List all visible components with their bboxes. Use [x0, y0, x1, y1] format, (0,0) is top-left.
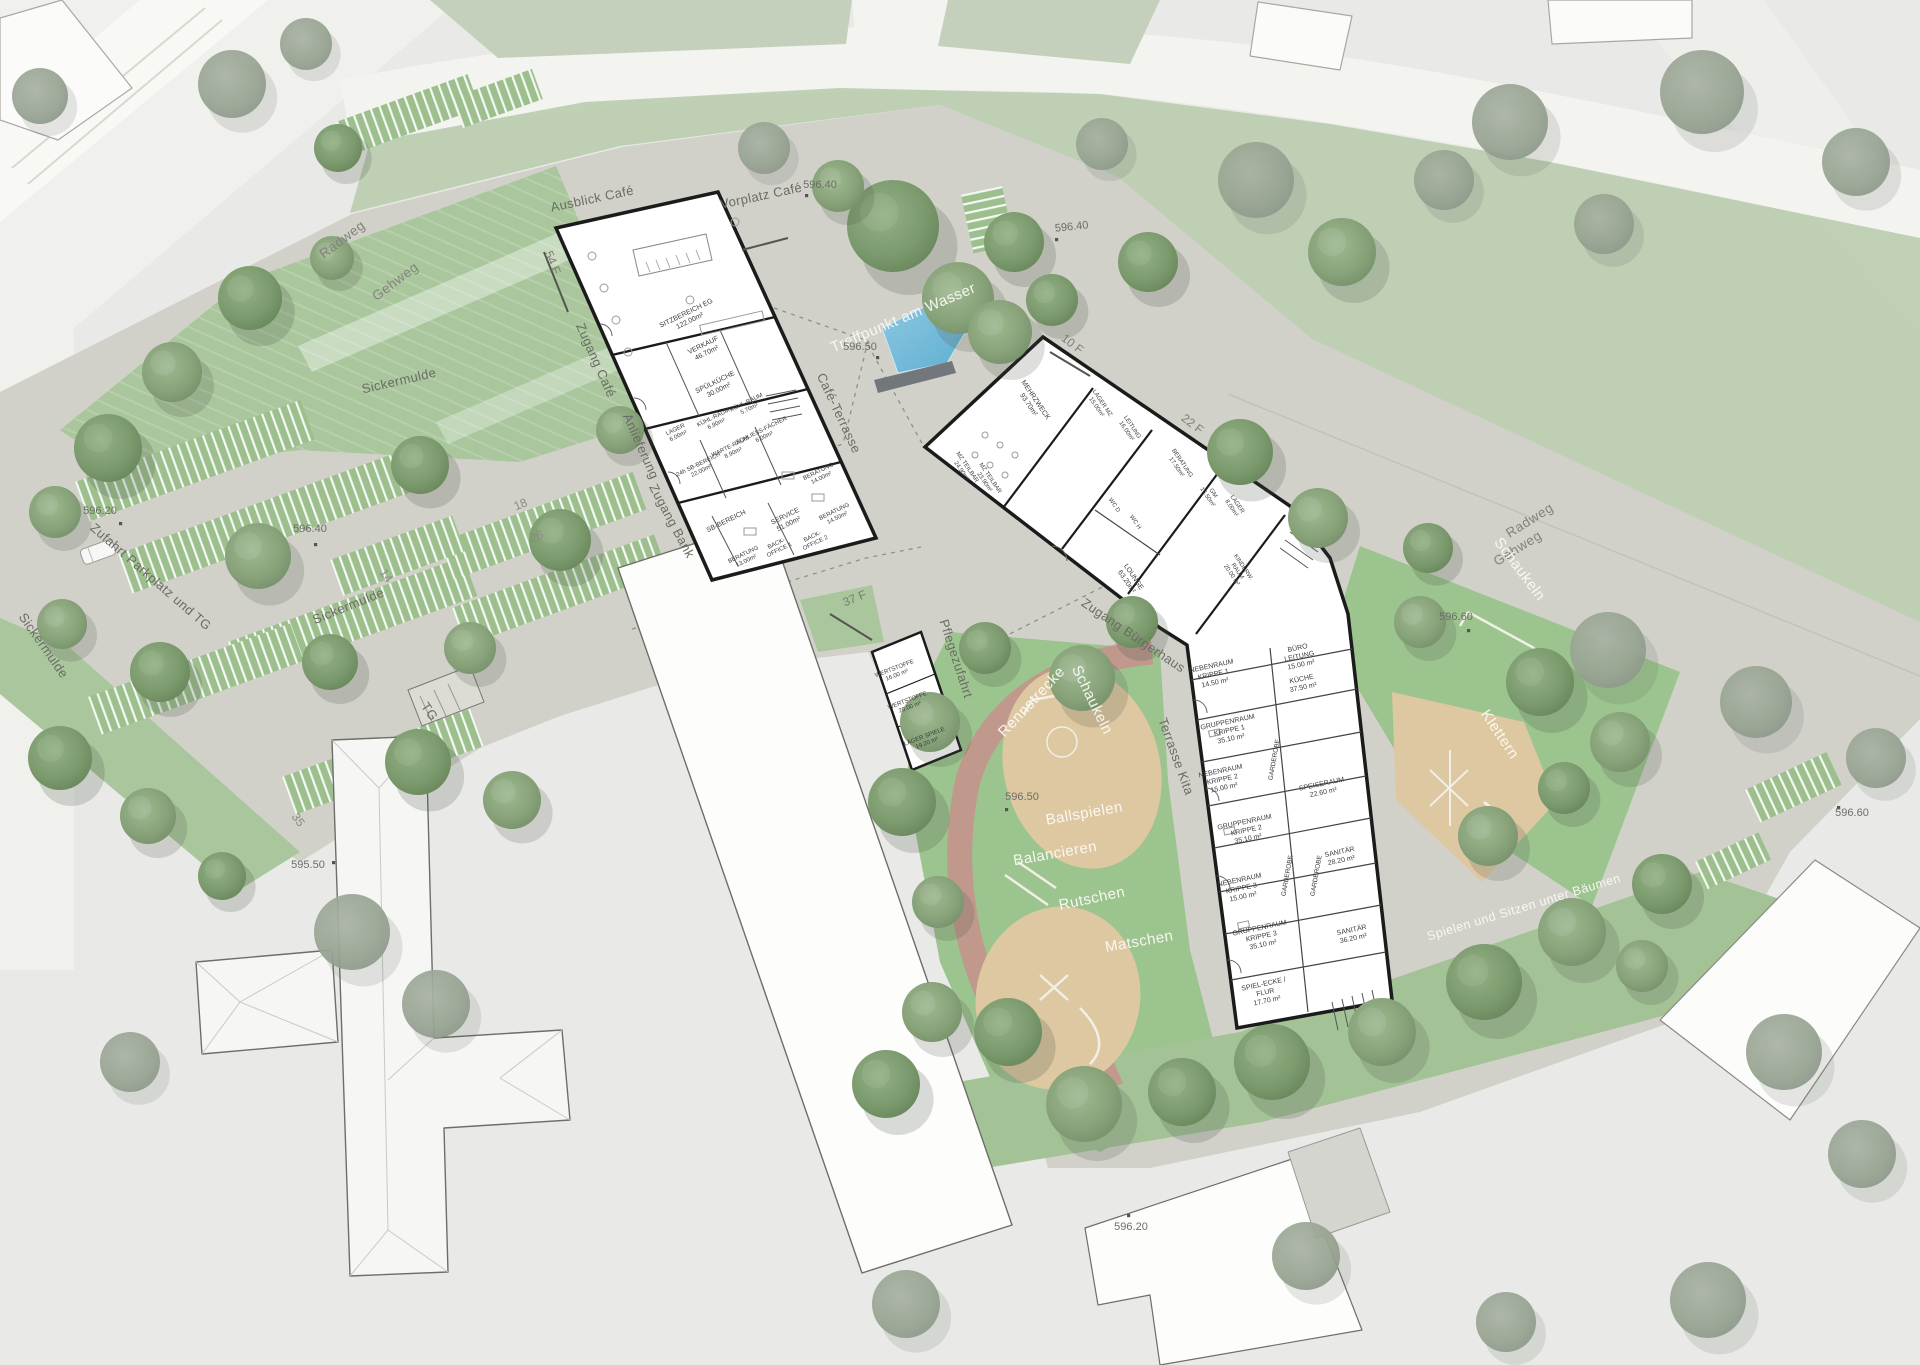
- label-elev-59650-b: 596.50: [1005, 791, 1039, 803]
- site-plan: Radweg Gehweg Radweg Gehweg Ausblick Caf…: [0, 0, 1920, 1365]
- site-plan-svg: Radweg Gehweg Radweg Gehweg Ausblick Caf…: [0, 0, 1920, 1365]
- label-elev-59620-a: 596.20: [83, 505, 117, 517]
- label-elev-59550: 595.50: [291, 859, 325, 871]
- label-elev-59660-b: 596.60: [1835, 807, 1869, 819]
- label-elev-59660-a: 596.60: [1439, 611, 1473, 623]
- label-elev-59640-a: 596.40: [803, 179, 837, 191]
- label-elev-59650-a: 596.50: [843, 341, 877, 353]
- label-elev-59620-b: 596.20: [1114, 1221, 1148, 1233]
- label-elev-59640-c: 596.40: [293, 523, 327, 535]
